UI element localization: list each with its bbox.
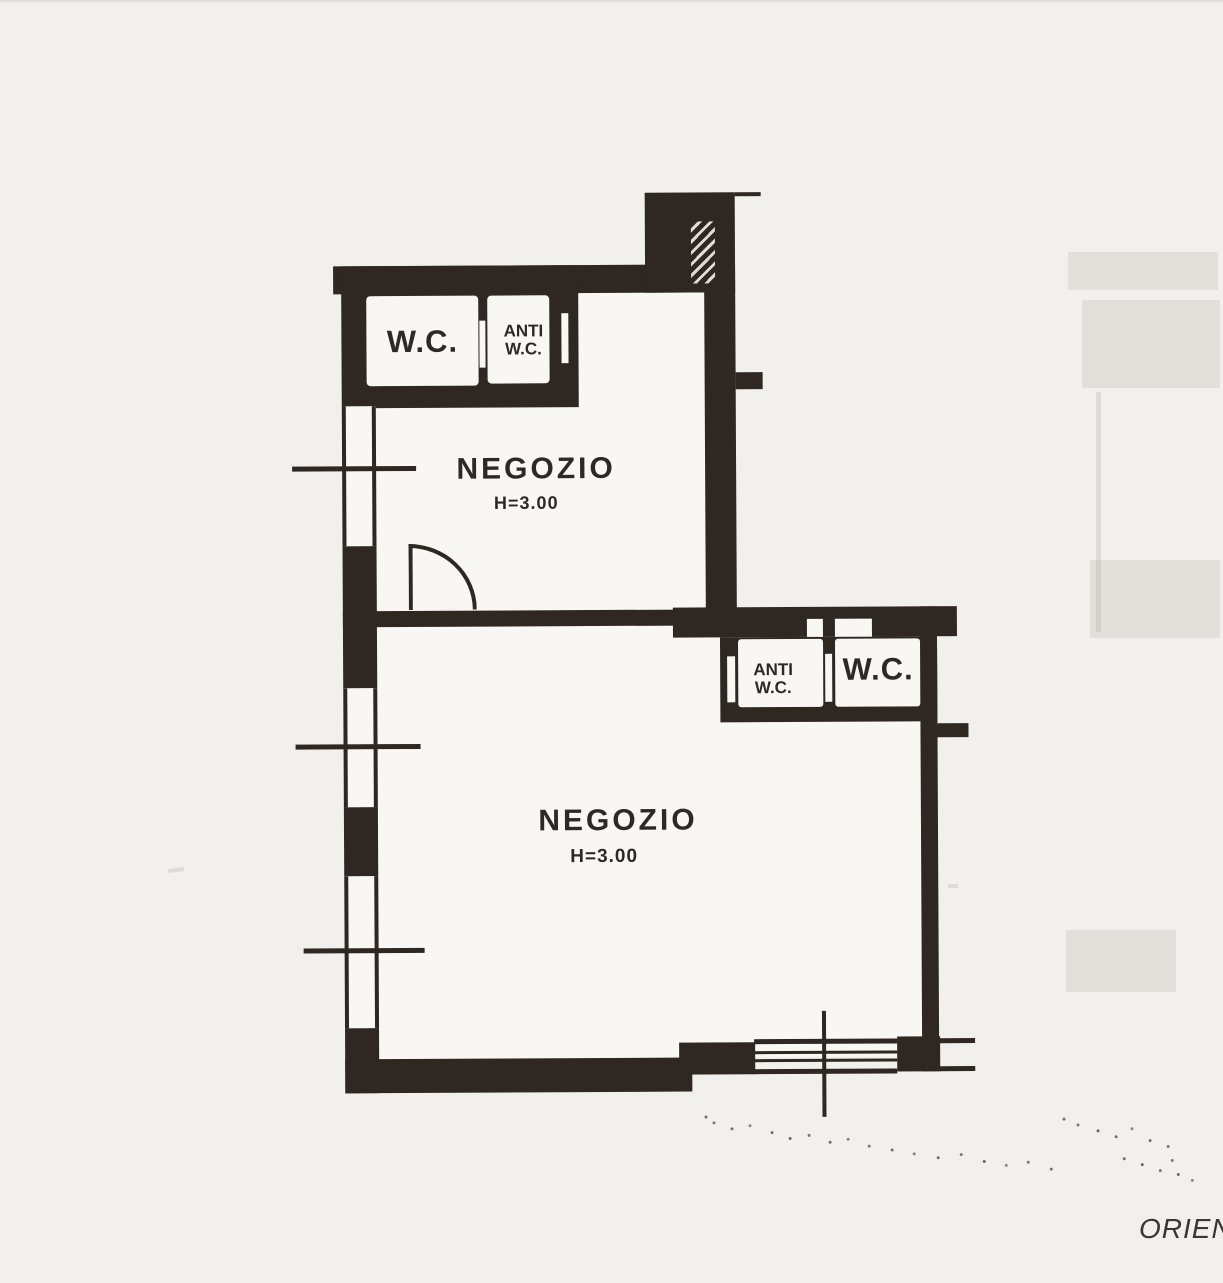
- cross-mark-left-1: [292, 466, 416, 472]
- cross-mark-left-3: [304, 948, 425, 954]
- label-antiwc-lower: ANTI W.C.: [753, 661, 793, 697]
- floor-plan-drawing: W.C. ANTI W.C. NEGOZIO H=3.00 ANTI W.C. …: [0, 0, 1223, 1283]
- faint-pencil-notes: [704, 1115, 707, 1118]
- faint-pencil-notes: [1063, 1118, 1066, 1121]
- wall-stub-right-lower: [937, 723, 968, 737]
- wall-shaft-block: [645, 192, 736, 292]
- wall-left-segment-2: [344, 807, 378, 876]
- wall-notch-wc-lower: [835, 619, 872, 637]
- orientation-annotation: ORIENT: [1139, 1213, 1223, 1245]
- label-height-lower: H=3.00: [570, 846, 638, 868]
- scanned-floor-plan-page: { "colors": { "paper": "#f1f0ec", "ink":…: [0, 0, 1223, 1280]
- wall-bottom-right-corner: [897, 1036, 940, 1071]
- label-wc-lower: W.C.: [842, 651, 913, 687]
- label-antiwc-upper-line1: ANTI: [504, 322, 544, 340]
- wall-bottom-left: [345, 1058, 692, 1094]
- label-negozio-lower: NEGOZIO: [538, 803, 698, 838]
- label-wc-upper: W.C.: [387, 324, 458, 360]
- door-gap-antiwc-lower: [727, 656, 735, 702]
- cross-mark-bottom: [822, 1011, 827, 1117]
- wall-right-upper: [704, 291, 737, 613]
- label-negozio-upper: NEGOZIO: [456, 452, 616, 487]
- door-gap-wc-upper: [479, 321, 485, 368]
- window-left-1: [342, 406, 377, 546]
- label-antiwc-lower-line1: ANTI: [753, 661, 793, 679]
- wall-partition-middle: [343, 610, 683, 628]
- wall-bottom-middle: [679, 1042, 755, 1074]
- door-gap-wc-lower: [825, 654, 832, 702]
- label-antiwc-upper-line2: W.C.: [504, 340, 544, 358]
- cross-mark-left-2: [296, 744, 421, 750]
- wall-notch-antiwc-lower: [807, 619, 823, 637]
- boundary-line-bottom-right-2: [939, 1066, 975, 1071]
- boundary-line-bottom-right-1: [939, 1038, 975, 1043]
- boundary-line-top-right: [735, 192, 761, 196]
- label-antiwc-lower-line2: W.C.: [753, 679, 793, 697]
- shaft-hatch-pattern: [691, 221, 715, 283]
- door-gap-antiwc-upper: [561, 313, 568, 363]
- wall-stub-right-upper: [736, 372, 763, 389]
- wall-right-lower: [920, 606, 939, 1071]
- label-height-upper: H=3.00: [494, 493, 559, 514]
- label-antiwc-upper: ANTI W.C.: [504, 322, 544, 358]
